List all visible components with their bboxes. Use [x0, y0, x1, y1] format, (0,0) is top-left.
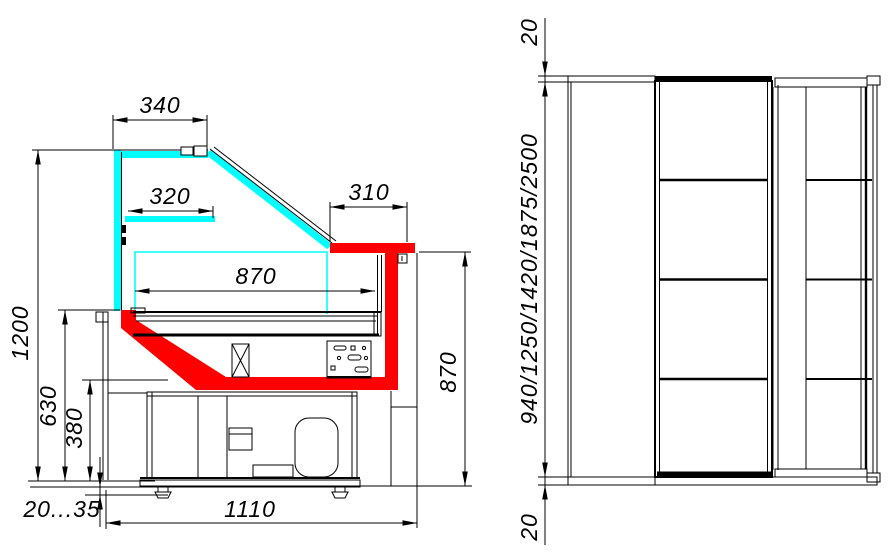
dim-1200: 1200: [7, 305, 33, 360]
sloped-glass-panel: [205, 150, 333, 249]
plan-view: 20 940/1250/1420/1875/2500 20: [516, 18, 880, 545]
corner-cap: [867, 76, 880, 85]
top-rail: [775, 78, 867, 87]
middle-glass-shelf: [125, 216, 215, 222]
dim-lengths: 940/1250/1420/1875/2500: [516, 133, 542, 425]
section-structure: [28, 146, 472, 528]
dim-310: 310: [348, 179, 389, 205]
support-brace: [232, 344, 249, 377]
shelf-bracket: [121, 237, 126, 245]
section-dimensions: 340 320 310 870 1200 630 380: [7, 92, 471, 529]
drawing-canvas: 340 320 310 870 1200 630 380: [0, 0, 894, 559]
front-glass-zone: [568, 82, 655, 477]
dim-380: 380: [61, 407, 87, 448]
compressor: [295, 418, 338, 477]
dim-bottom-overhang: 20: [516, 513, 542, 542]
section-view: 340 320 310 870 1200 630 380: [7, 92, 472, 529]
tray: [253, 465, 293, 477]
bottom-overhang-strip: [568, 477, 877, 485]
dim-foot-height: 20...35: [22, 496, 100, 522]
plan-dimensions: 20 940/1250/1420/1875/2500 20: [516, 18, 572, 545]
control-plate: [327, 341, 371, 378]
lamp-housing: [181, 147, 193, 155]
dim-870-width: 870: [235, 263, 276, 289]
dim-630: 630: [35, 385, 61, 426]
display-deck: [131, 308, 381, 336]
dim-1110: 1110: [224, 496, 276, 522]
condenser-box: [229, 428, 252, 450]
dim-340: 340: [139, 92, 180, 118]
dim-top-overhang: 20: [516, 18, 542, 47]
end-panel-band-bottom: [657, 472, 772, 478]
front-glass-panel: [114, 150, 121, 311]
bottom-rail: [775, 469, 867, 477]
technical-drawing: 340 320 310 870 1200 630 380: [0, 0, 894, 559]
inner-liner: [135, 252, 327, 314]
top-overhang-strip: [568, 76, 655, 82]
dim-870-height: 870: [435, 351, 461, 392]
plan-structure: [568, 76, 880, 485]
shelf-bracket: [121, 225, 126, 233]
dim-320: 320: [149, 183, 190, 209]
glass-panels: [114, 150, 333, 311]
base-unit: [140, 392, 360, 487]
